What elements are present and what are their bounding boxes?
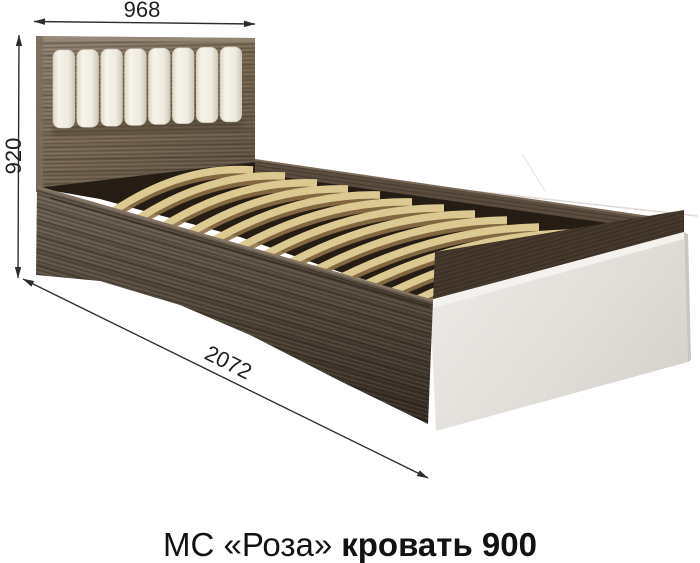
cushion-strip [149,48,171,124]
product-series-label: МС «Роза» [163,526,332,563]
cushion-strip [101,49,123,126]
bed-illustration: 968 920 2072 [0,0,700,563]
product-name-label: кровать 900 [341,526,537,563]
cushion-strip [220,47,242,122]
headboard-top-edge [36,36,255,42]
length-dimension-label: 2072 [201,340,256,384]
cushion-strip [77,50,99,128]
cushion-strip [196,47,218,122]
cushion-strip [125,49,147,126]
cushion-strip [53,50,75,128]
width-dimension-label: 968 [124,0,161,22]
product-figure: 968 920 2072 МС «Роза»кровать 900 [0,0,700,563]
cushion-strip [172,48,194,124]
height-dimension-label: 920 [1,138,26,175]
product-caption: МС «Роза»кровать 900 [0,527,700,563]
headboard-side-edge [36,36,43,192]
